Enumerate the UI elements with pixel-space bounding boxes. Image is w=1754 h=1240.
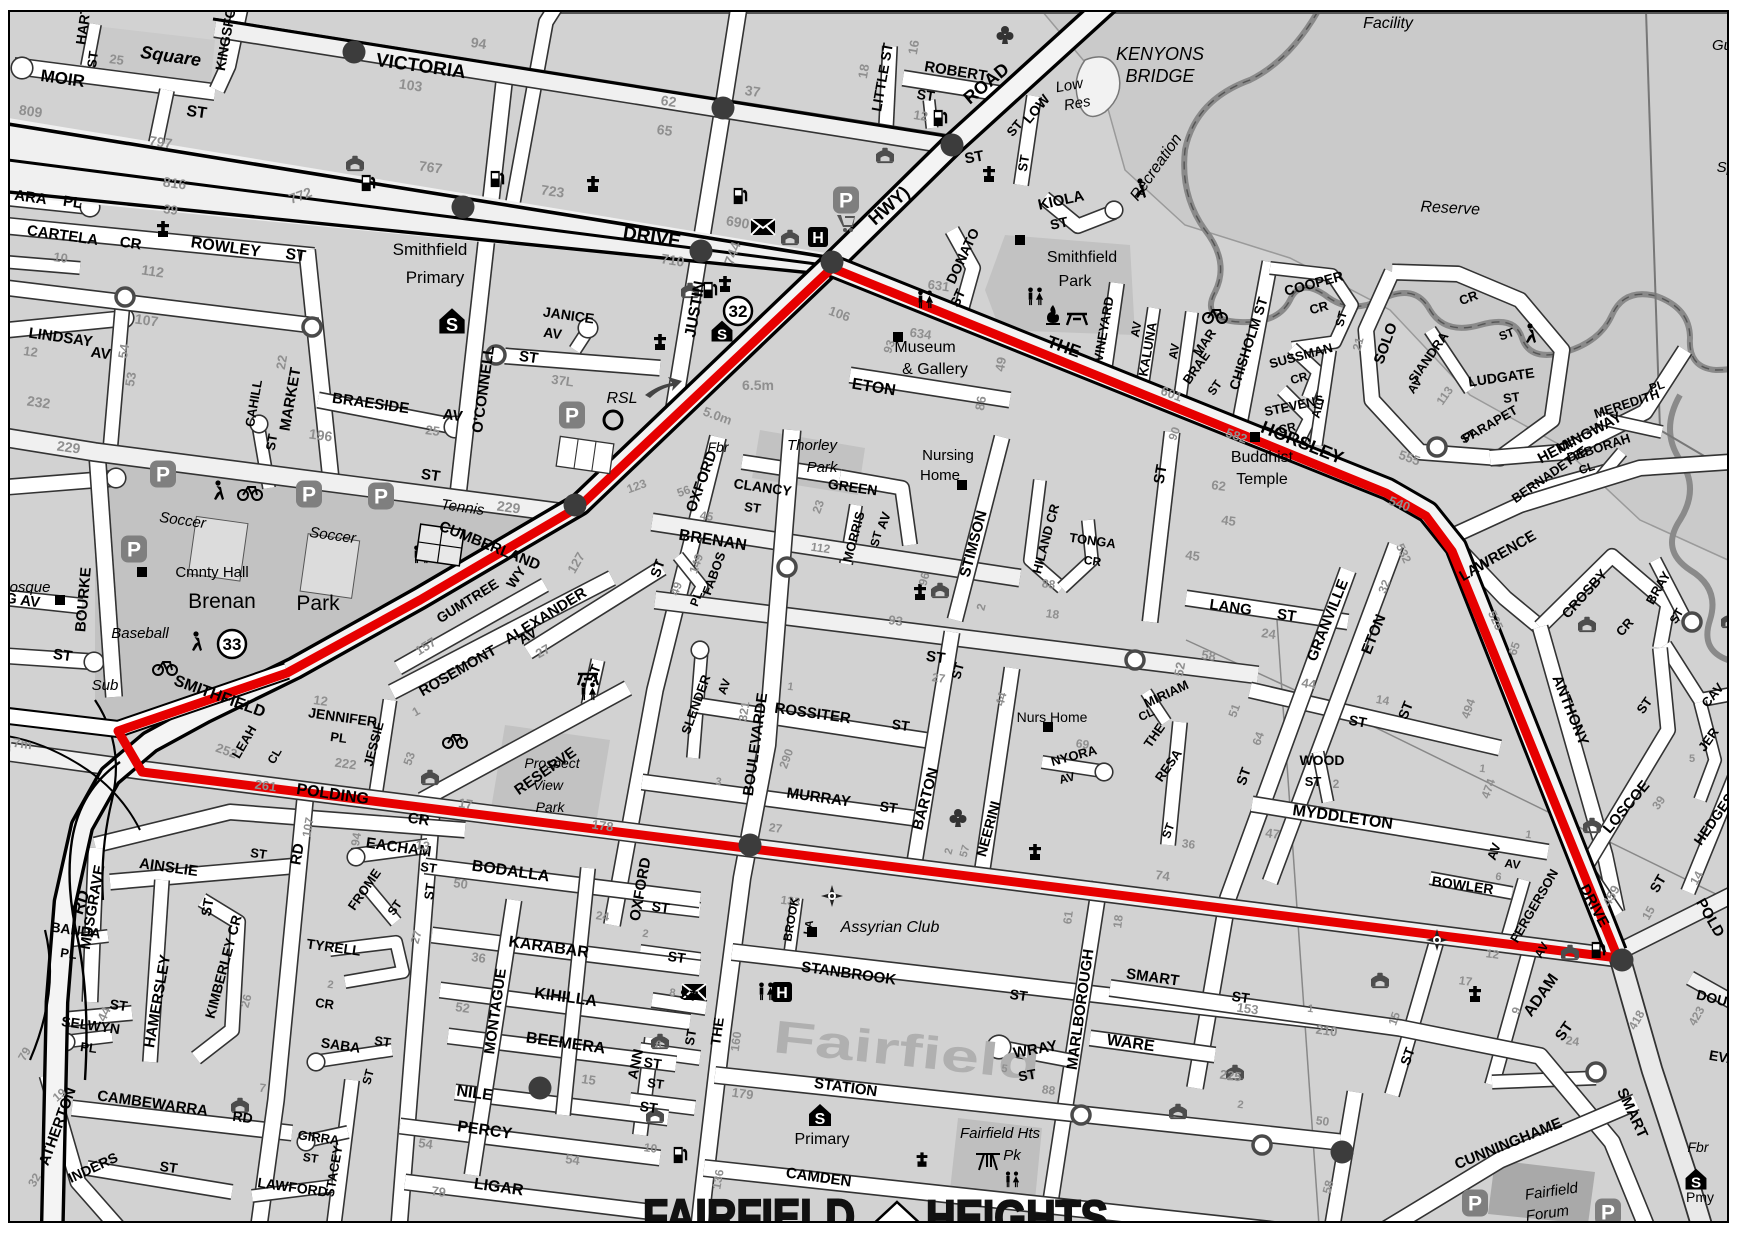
svg-text:ST: ST bbox=[373, 1033, 392, 1050]
svg-text:S: S bbox=[446, 314, 458, 335]
svg-text:45: 45 bbox=[699, 508, 714, 524]
svg-text:88: 88 bbox=[1041, 576, 1056, 592]
svg-text:Assyrian Club: Assyrian Club bbox=[840, 919, 940, 936]
svg-text:& Gallery: & Gallery bbox=[902, 361, 968, 378]
svg-text:52: 52 bbox=[1171, 661, 1188, 678]
svg-text:Primary: Primary bbox=[406, 268, 465, 287]
svg-text:ST: ST bbox=[1276, 606, 1297, 626]
svg-text:PL: PL bbox=[59, 945, 78, 962]
svg-text:62: 62 bbox=[660, 92, 678, 110]
svg-text:112: 112 bbox=[140, 262, 165, 281]
svg-text:50: 50 bbox=[452, 875, 468, 892]
svg-text:ST: ST bbox=[743, 499, 762, 516]
svg-text:36: 36 bbox=[470, 949, 486, 966]
svg-text:232: 232 bbox=[26, 393, 52, 412]
svg-text:49: 49 bbox=[992, 356, 1009, 373]
svg-text:AV: AV bbox=[90, 344, 112, 364]
svg-text:18: 18 bbox=[1045, 606, 1060, 622]
svg-text:View: View bbox=[533, 777, 564, 793]
svg-text:AV: AV bbox=[442, 406, 464, 426]
svg-text:Facility: Facility bbox=[1363, 15, 1414, 32]
svg-text:24: 24 bbox=[595, 908, 610, 924]
svg-text:10: 10 bbox=[52, 249, 68, 266]
svg-text:ST: ST bbox=[1151, 463, 1171, 485]
svg-text:12: 12 bbox=[22, 343, 38, 360]
svg-text:321: 321 bbox=[736, 700, 753, 722]
svg-text:88: 88 bbox=[1041, 1082, 1056, 1098]
svg-text:24: 24 bbox=[1260, 625, 1277, 642]
svg-text:ST: ST bbox=[916, 86, 937, 105]
svg-text:Thorley: Thorley bbox=[787, 437, 839, 454]
svg-text:P: P bbox=[374, 486, 388, 509]
svg-text:74: 74 bbox=[1154, 867, 1171, 884]
svg-text:Baseball: Baseball bbox=[111, 625, 169, 642]
svg-text:261: 261 bbox=[254, 777, 278, 795]
svg-text:ST: ST bbox=[109, 996, 129, 1014]
svg-text:229: 229 bbox=[56, 438, 82, 457]
svg-text:AV: AV bbox=[1166, 342, 1183, 360]
svg-text:Brenan: Brenan bbox=[188, 590, 256, 613]
svg-text:Fbr: Fbr bbox=[1688, 1139, 1710, 1155]
svg-text:13: 13 bbox=[414, 837, 430, 854]
svg-text:CR: CR bbox=[119, 234, 143, 254]
svg-text:196: 196 bbox=[308, 426, 334, 445]
svg-text:Smithfield: Smithfield bbox=[393, 240, 468, 259]
svg-text:10: 10 bbox=[643, 1140, 658, 1156]
svg-text:CR: CR bbox=[314, 995, 335, 1013]
svg-text:ST: ST bbox=[159, 1158, 179, 1176]
svg-text:25: 25 bbox=[424, 422, 440, 439]
svg-text:Nursing: Nursing bbox=[922, 447, 974, 464]
svg-text:P: P bbox=[302, 484, 316, 507]
svg-text:15: 15 bbox=[580, 1071, 596, 1088]
svg-text:P: P bbox=[127, 539, 141, 562]
svg-text:103: 103 bbox=[398, 76, 424, 95]
svg-text:H: H bbox=[776, 985, 788, 1002]
svg-text:Buddhist: Buddhist bbox=[1231, 449, 1294, 466]
svg-text:37L: 37L bbox=[550, 372, 574, 390]
svg-text:797: 797 bbox=[148, 133, 174, 152]
svg-text:Cmnty Hall: Cmnty Hall bbox=[175, 564, 248, 581]
svg-text:CR: CR bbox=[1083, 553, 1102, 569]
svg-text:ST: ST bbox=[198, 896, 217, 917]
svg-text:Park: Park bbox=[536, 799, 566, 815]
svg-text:ST: ST bbox=[284, 246, 307, 266]
svg-text:39: 39 bbox=[162, 201, 178, 218]
svg-text:Reserve: Reserve bbox=[1420, 198, 1480, 218]
svg-text:Park: Park bbox=[1059, 273, 1093, 290]
svg-text:Park: Park bbox=[807, 459, 839, 476]
svg-text:ST: ST bbox=[891, 716, 911, 734]
svg-text:50: 50 bbox=[1315, 1113, 1330, 1129]
svg-text:47: 47 bbox=[1264, 825, 1280, 842]
svg-text:ST: ST bbox=[185, 103, 208, 123]
svg-text:25: 25 bbox=[108, 51, 124, 68]
svg-text:36: 36 bbox=[1181, 836, 1196, 852]
svg-text:ST: ST bbox=[421, 882, 438, 901]
svg-text:ST: ST bbox=[302, 1150, 320, 1166]
svg-text:45: 45 bbox=[1220, 512, 1236, 529]
svg-text:P: P bbox=[565, 405, 579, 428]
svg-text:ST: ST bbox=[1348, 712, 1369, 731]
svg-text:Sub: Sub bbox=[92, 677, 119, 694]
svg-text:37: 37 bbox=[744, 82, 762, 100]
svg-text:LA: LA bbox=[802, 919, 816, 936]
svg-text:27: 27 bbox=[931, 670, 946, 686]
svg-text:225: 225 bbox=[1219, 1067, 1243, 1085]
svg-text:86: 86 bbox=[972, 395, 989, 412]
svg-text:ST: ST bbox=[963, 148, 985, 168]
svg-text:RD: RD bbox=[232, 1108, 254, 1127]
svg-text:P: P bbox=[1468, 1193, 1482, 1216]
svg-text:18: 18 bbox=[1110, 914, 1126, 929]
svg-text:16: 16 bbox=[905, 39, 922, 56]
svg-text:153: 153 bbox=[1236, 1000, 1260, 1018]
svg-text:ST: ST bbox=[1015, 154, 1033, 173]
svg-text:P: P bbox=[839, 190, 853, 213]
svg-text:osque: osque bbox=[10, 579, 51, 596]
svg-text:27: 27 bbox=[768, 820, 783, 836]
svg-text:PL: PL bbox=[79, 1039, 98, 1056]
svg-text:KENYONS: KENYONS bbox=[1116, 44, 1204, 64]
svg-text:14: 14 bbox=[1375, 692, 1391, 708]
svg-text:179: 179 bbox=[731, 1085, 755, 1103]
svg-text:S: S bbox=[815, 1111, 826, 1128]
svg-text:AV: AV bbox=[1504, 856, 1522, 872]
svg-text:ST: ST bbox=[1017, 1066, 1038, 1085]
svg-text:P: P bbox=[156, 464, 170, 487]
svg-text:222: 222 bbox=[334, 755, 358, 773]
svg-text:ST: ST bbox=[682, 1028, 700, 1047]
svg-text:178: 178 bbox=[591, 817, 615, 835]
svg-text:12: 12 bbox=[1485, 946, 1500, 962]
svg-text:79: 79 bbox=[430, 1183, 446, 1200]
svg-text:62: 62 bbox=[1210, 477, 1226, 494]
svg-text:94: 94 bbox=[470, 34, 488, 52]
svg-text:Primary: Primary bbox=[794, 1131, 849, 1148]
svg-text:Fbr: Fbr bbox=[708, 439, 730, 455]
svg-text:ST: ST bbox=[1305, 774, 1322, 789]
svg-text:112: 112 bbox=[810, 540, 831, 557]
svg-text:809: 809 bbox=[18, 102, 44, 121]
svg-text:Park: Park bbox=[296, 592, 340, 615]
svg-text:160: 160 bbox=[728, 1030, 745, 1052]
svg-text:BRIDGE: BRIDGE bbox=[1125, 66, 1195, 86]
svg-text:94: 94 bbox=[348, 831, 364, 847]
svg-text:634: 634 bbox=[909, 325, 933, 343]
svg-text:229: 229 bbox=[496, 498, 522, 517]
svg-text:RSL: RSL bbox=[606, 390, 637, 407]
svg-text:52: 52 bbox=[454, 999, 470, 1016]
svg-text:Pmy: Pmy bbox=[1686, 1189, 1714, 1205]
svg-text:53: 53 bbox=[122, 371, 139, 388]
svg-text:ST: ST bbox=[420, 466, 441, 486]
svg-text:PL: PL bbox=[329, 729, 348, 746]
svg-text:Smithfield: Smithfield bbox=[1047, 249, 1117, 266]
svg-text:22: 22 bbox=[273, 354, 290, 371]
svg-text:61: 61 bbox=[1060, 910, 1076, 925]
svg-text:32: 32 bbox=[729, 302, 748, 321]
svg-text:631: 631 bbox=[927, 277, 951, 295]
svg-text:ST: ST bbox=[879, 798, 899, 816]
svg-text:ST: ST bbox=[419, 859, 438, 876]
svg-text:ST: ST bbox=[639, 1098, 659, 1116]
svg-text:54: 54 bbox=[417, 1135, 434, 1152]
svg-text:ST: ST bbox=[249, 845, 268, 862]
svg-text:S: S bbox=[717, 327, 727, 344]
svg-text:ST: ST bbox=[667, 948, 687, 966]
svg-text:ST: ST bbox=[518, 348, 539, 368]
svg-text:12: 12 bbox=[312, 692, 328, 709]
svg-text:ST: ST bbox=[1009, 986, 1029, 1004]
svg-text:ST: ST bbox=[651, 898, 671, 916]
svg-text:ST: ST bbox=[263, 433, 281, 452]
svg-text:33: 33 bbox=[223, 635, 242, 654]
svg-text:Temple: Temple bbox=[1236, 471, 1288, 488]
svg-text:65: 65 bbox=[656, 121, 674, 139]
svg-text:12: 12 bbox=[912, 107, 929, 124]
svg-text:45: 45 bbox=[1184, 547, 1200, 564]
svg-text:Nurs Home: Nurs Home bbox=[1017, 709, 1088, 725]
svg-text:PL: PL bbox=[62, 193, 83, 213]
svg-text:Pk: Pk bbox=[1003, 1147, 1022, 1164]
svg-text:17: 17 bbox=[1458, 973, 1473, 989]
svg-text:ST: ST bbox=[643, 1054, 663, 1072]
svg-text:107: 107 bbox=[134, 311, 160, 330]
svg-text:H: H bbox=[812, 230, 824, 247]
svg-text:816: 816 bbox=[162, 174, 188, 193]
svg-text:6.5m: 6.5m bbox=[742, 377, 774, 393]
svg-text:7m: 7m bbox=[12, 735, 33, 752]
svg-text:723: 723 bbox=[540, 182, 566, 201]
svg-text:Prospect: Prospect bbox=[524, 755, 580, 771]
svg-text:93: 93 bbox=[887, 612, 903, 629]
svg-text:Home: Home bbox=[920, 467, 960, 484]
svg-text:ST: ST bbox=[925, 648, 946, 668]
svg-text:ST: ST bbox=[52, 646, 73, 666]
svg-text:WOOD: WOOD bbox=[1299, 752, 1344, 768]
svg-text:2: 2 bbox=[1333, 777, 1340, 791]
svg-text:ST: ST bbox=[679, 986, 699, 1004]
svg-text:ST: ST bbox=[646, 1075, 665, 1092]
svg-text:18: 18 bbox=[855, 63, 872, 80]
svg-text:210: 210 bbox=[1315, 1022, 1339, 1040]
svg-text:AV: AV bbox=[542, 324, 563, 342]
svg-text:Fairfield Hts: Fairfield Hts bbox=[960, 1125, 1041, 1142]
svg-text:ST: ST bbox=[84, 50, 101, 69]
svg-text:CR: CR bbox=[407, 810, 431, 830]
svg-text:54: 54 bbox=[564, 1151, 581, 1168]
svg-text:58: 58 bbox=[1200, 647, 1216, 664]
svg-text:5: 5 bbox=[1689, 753, 1695, 765]
svg-text:767: 767 bbox=[418, 158, 444, 177]
svg-text:17: 17 bbox=[457, 795, 473, 812]
